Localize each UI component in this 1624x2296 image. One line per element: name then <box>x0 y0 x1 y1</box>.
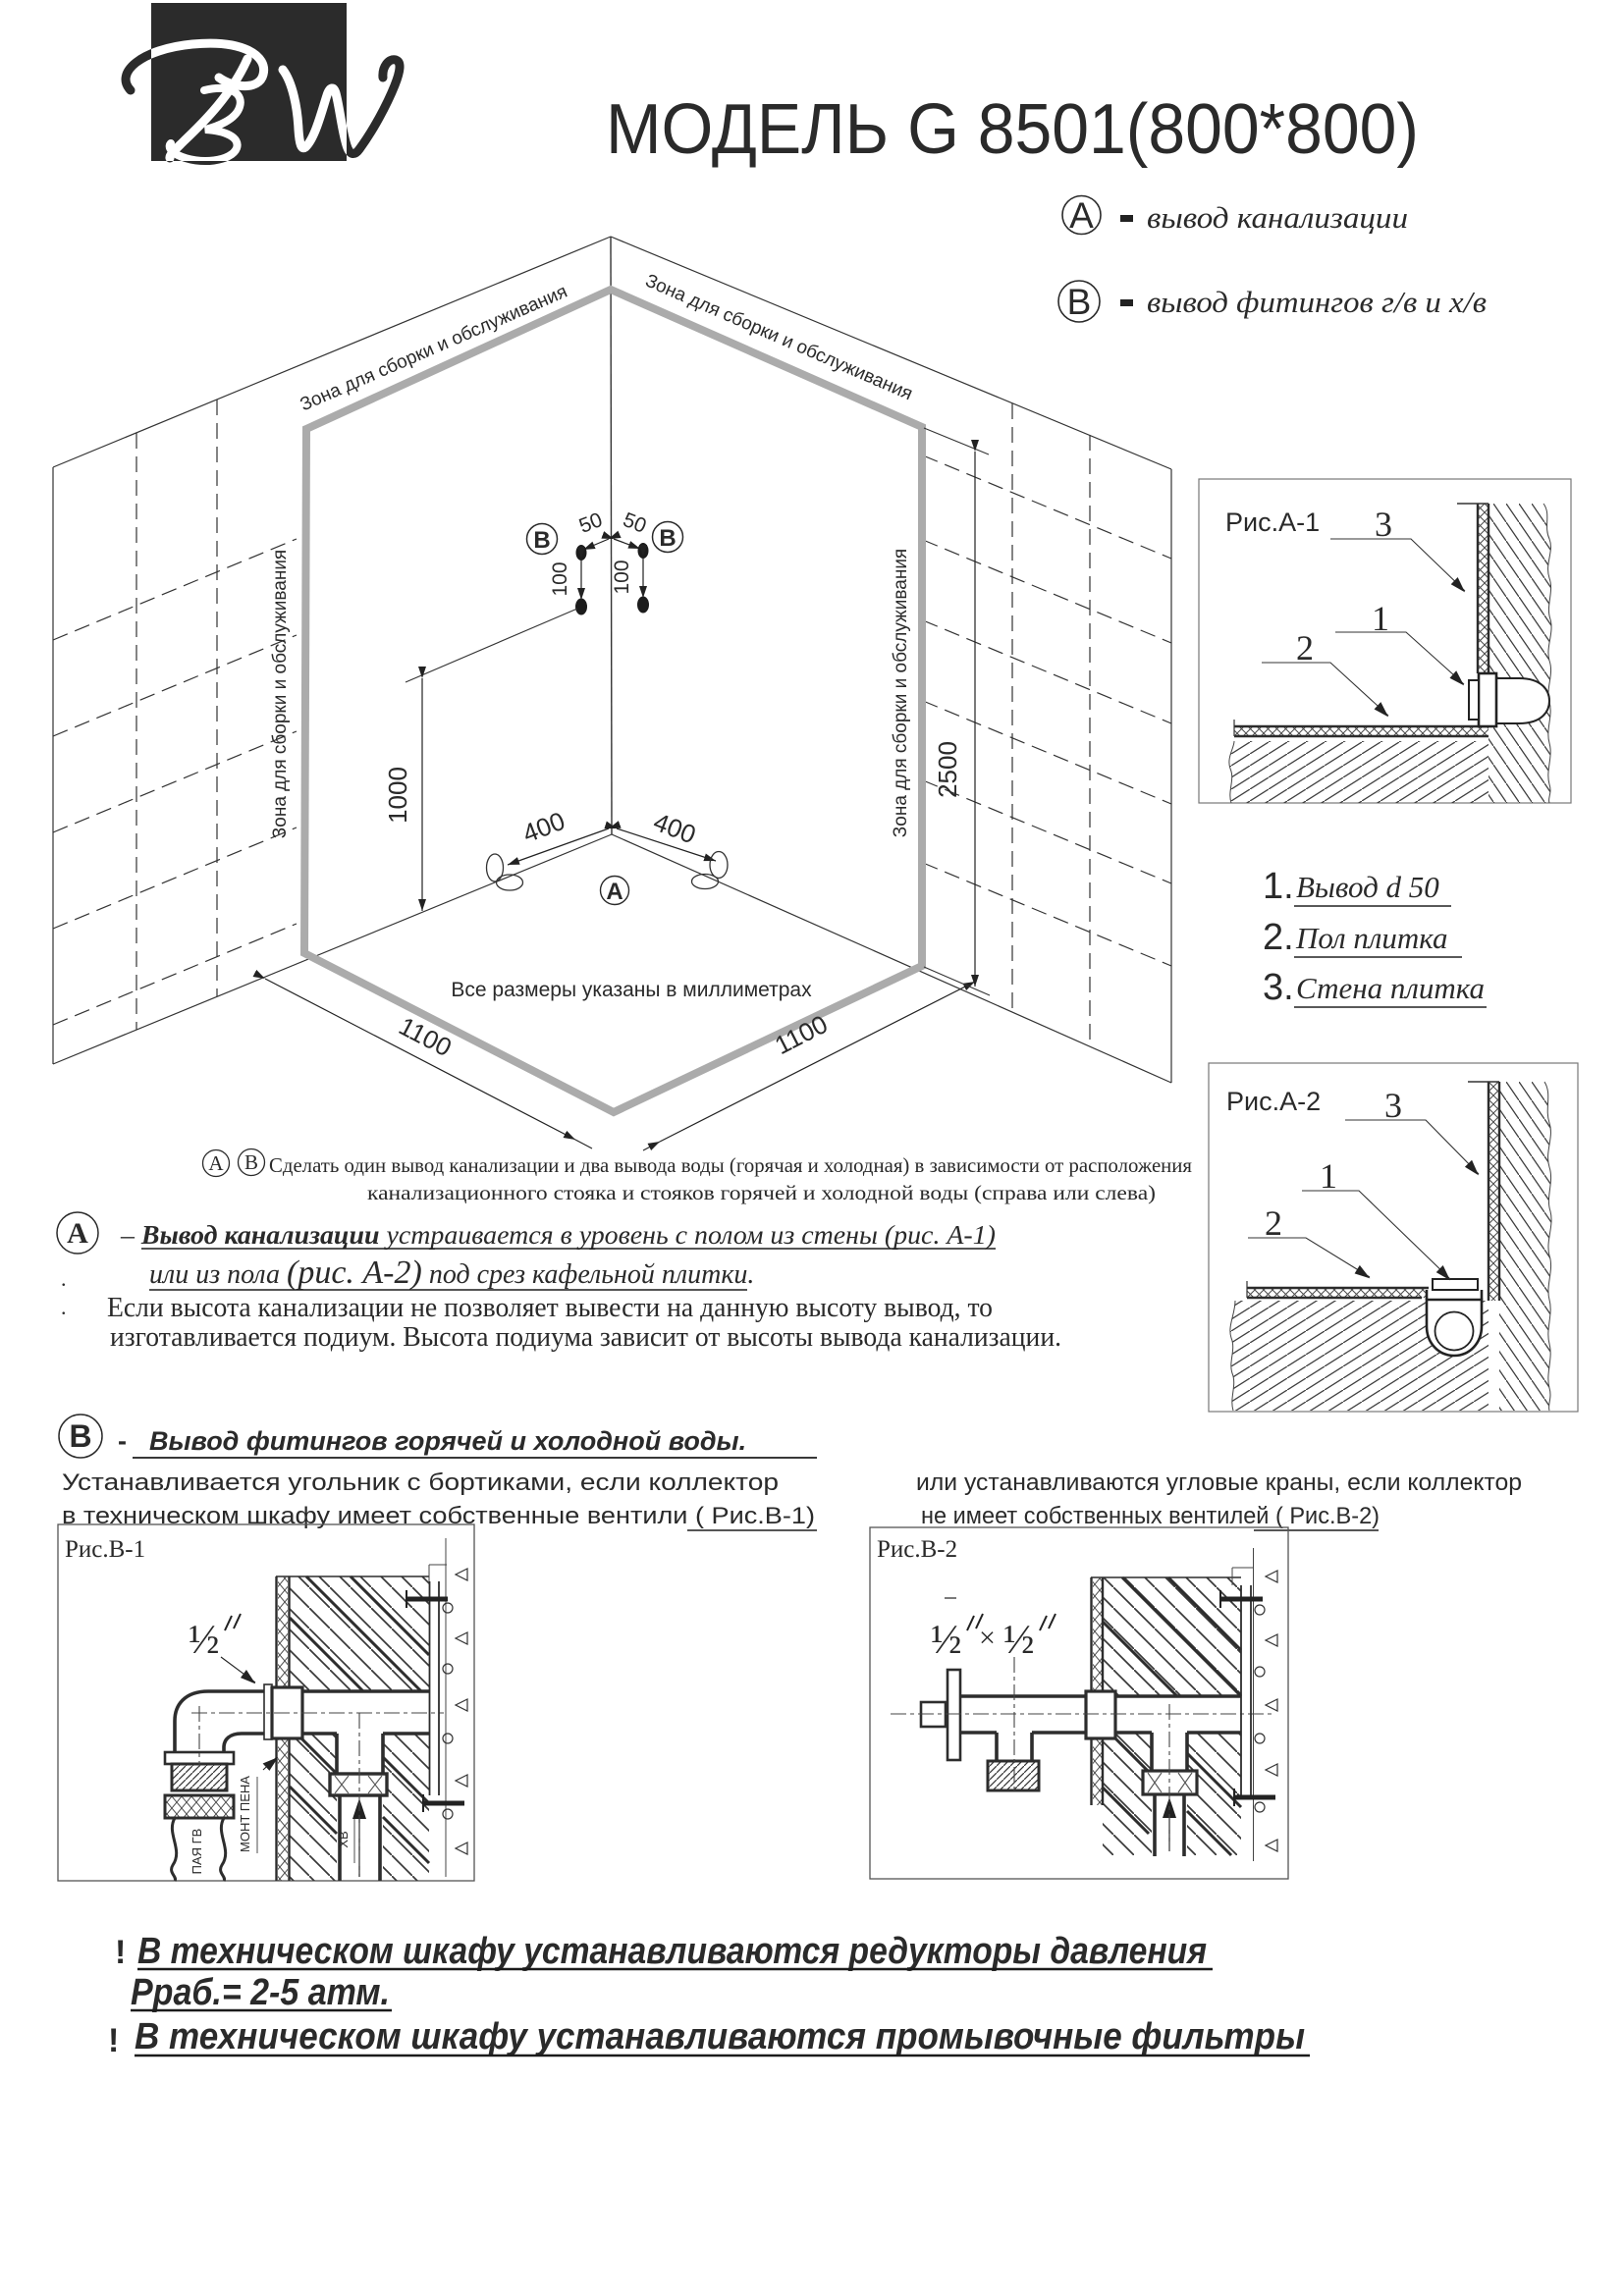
svg-text:Зона для сборки и обслуживания: Зона для сборки и обслуживания <box>891 549 911 837</box>
svg-text:2: 2 <box>1296 628 1314 667</box>
svg-text:Рис.В-1: Рис.В-1 <box>65 1536 145 1563</box>
svg-text:в техническом шкафу имеет собс: в техническом шкафу имеет собственные ве… <box>62 1503 815 1529</box>
svg-text:вывод фитингов г/в и х/в: вывод фитингов г/в и х/в <box>1147 285 1487 319</box>
svg-text:!: ! <box>115 1934 126 1971</box>
svg-text:100: 100 <box>549 561 571 596</box>
svg-text:3: 3 <box>1375 505 1392 544</box>
svg-text:А: А <box>208 1151 224 1175</box>
svg-text:Рис.В-2: Рис.В-2 <box>877 1536 957 1563</box>
svg-text:изготавливается подиум. Высота: изготавливается подиум. Высота подиума з… <box>110 1322 1061 1353</box>
svg-text:100: 100 <box>611 560 633 594</box>
svg-text:1000: 1000 <box>383 767 412 824</box>
svg-text:½: ½ <box>1003 1618 1035 1663</box>
svg-text:½: ½ <box>189 1618 220 1663</box>
svg-text:А: А <box>67 1217 88 1250</box>
svg-text:Стена плитка: Стена плитка <box>1296 971 1485 1005</box>
svg-text:Рис.А-1: Рис.А-1 <box>1225 507 1320 537</box>
svg-text:Если высота канализации не поз: Если высота канализации не позволяет выв… <box>107 1293 993 1323</box>
svg-text:- Вывод фитингов горячей и хо: - Вывод фитингов горячей и холодной воды… <box>118 1426 746 1456</box>
svg-text:2500: 2500 <box>933 741 962 798</box>
svg-text:Рис.А-2: Рис.А-2 <box>1226 1087 1321 1116</box>
svg-text:или из пола (рис. А-2) под сре: или из пола (рис. А-2) под срез кафельно… <box>149 1255 754 1291</box>
svg-text:2.: 2. <box>1263 917 1294 958</box>
svg-text:Зона для сборки и обслуживания: Зона для сборки и обслуживания <box>270 550 291 838</box>
svg-text:В техническом шкафу устанавлив: В техническом шкафу устанавливаются пром… <box>135 2016 1305 2057</box>
svg-text:вывод канализации: вывод канализации <box>1147 200 1408 235</box>
svg-text:.: . <box>61 1295 67 1319</box>
svg-text:A: A <box>1069 195 1094 236</box>
svg-text:B: B <box>659 525 676 552</box>
svg-text:В: В <box>244 1150 258 1174</box>
svg-text:МОНТ ПЕНА: МОНТ ПЕНА <box>238 1776 252 1852</box>
svg-text:B: B <box>1067 282 1092 322</box>
svg-text:Устанавливается угольник с бор: Устанавливается угольник с бортиками, ес… <box>62 1469 779 1496</box>
svg-text:Сделать один вывод канализации: Сделать один вывод канализации и два выв… <box>269 1153 1192 1177</box>
svg-text:×: × <box>979 1622 996 1654</box>
svg-text:В техническом шкафу устанавлив: В техническом шкафу устанавливаются реду… <box>137 1931 1207 1972</box>
svg-text:канализационного стояка и стоя: канализационного стояка и стояков горяче… <box>367 1181 1156 1204</box>
svg-text:B: B <box>69 1418 91 1454</box>
svg-text:Пол плитка: Пол плитка <box>1295 921 1448 955</box>
svg-text:A: A <box>606 879 623 905</box>
svg-text:– Вывод канализации устраивае: – Вывод канализации устраивается в урове… <box>120 1220 996 1250</box>
svg-text:ХВ: ХВ <box>336 1831 351 1847</box>
svg-text:B: B <box>533 527 550 554</box>
svg-text:Вывод d 50: Вывод d 50 <box>1296 870 1439 904</box>
svg-text:½: ½ <box>931 1618 962 1663</box>
svg-text:или устанавливаются угловые к: или устанавливаются угловые краны, если … <box>916 1469 1522 1496</box>
svg-text:1: 1 <box>1320 1156 1337 1196</box>
svg-text:1.: 1. <box>1263 866 1294 907</box>
svg-text:!: ! <box>108 2022 119 2059</box>
svg-text:ПАЯ ГВ: ПАЯ ГВ <box>189 1829 204 1875</box>
svg-text:2: 2 <box>1265 1203 1282 1243</box>
svg-text:Рраб.= 2-5 атм.: Рраб.= 2-5 атм. <box>131 1972 390 2013</box>
svg-text:3.: 3. <box>1263 967 1294 1008</box>
svg-text:не имеет собственных вентилей: не имеет собственных вентилей ( Рис.В-2) <box>921 1503 1380 1529</box>
svg-text:Все размеры указаны в миллимет: Все размеры указаны в миллиметрах <box>451 979 812 1001</box>
svg-text:3: 3 <box>1384 1086 1402 1125</box>
svg-text:МОДЕЛЬ G 8501(800*800): МОДЕЛЬ G 8501(800*800) <box>606 90 1419 169</box>
svg-text:.: . <box>61 1266 67 1291</box>
